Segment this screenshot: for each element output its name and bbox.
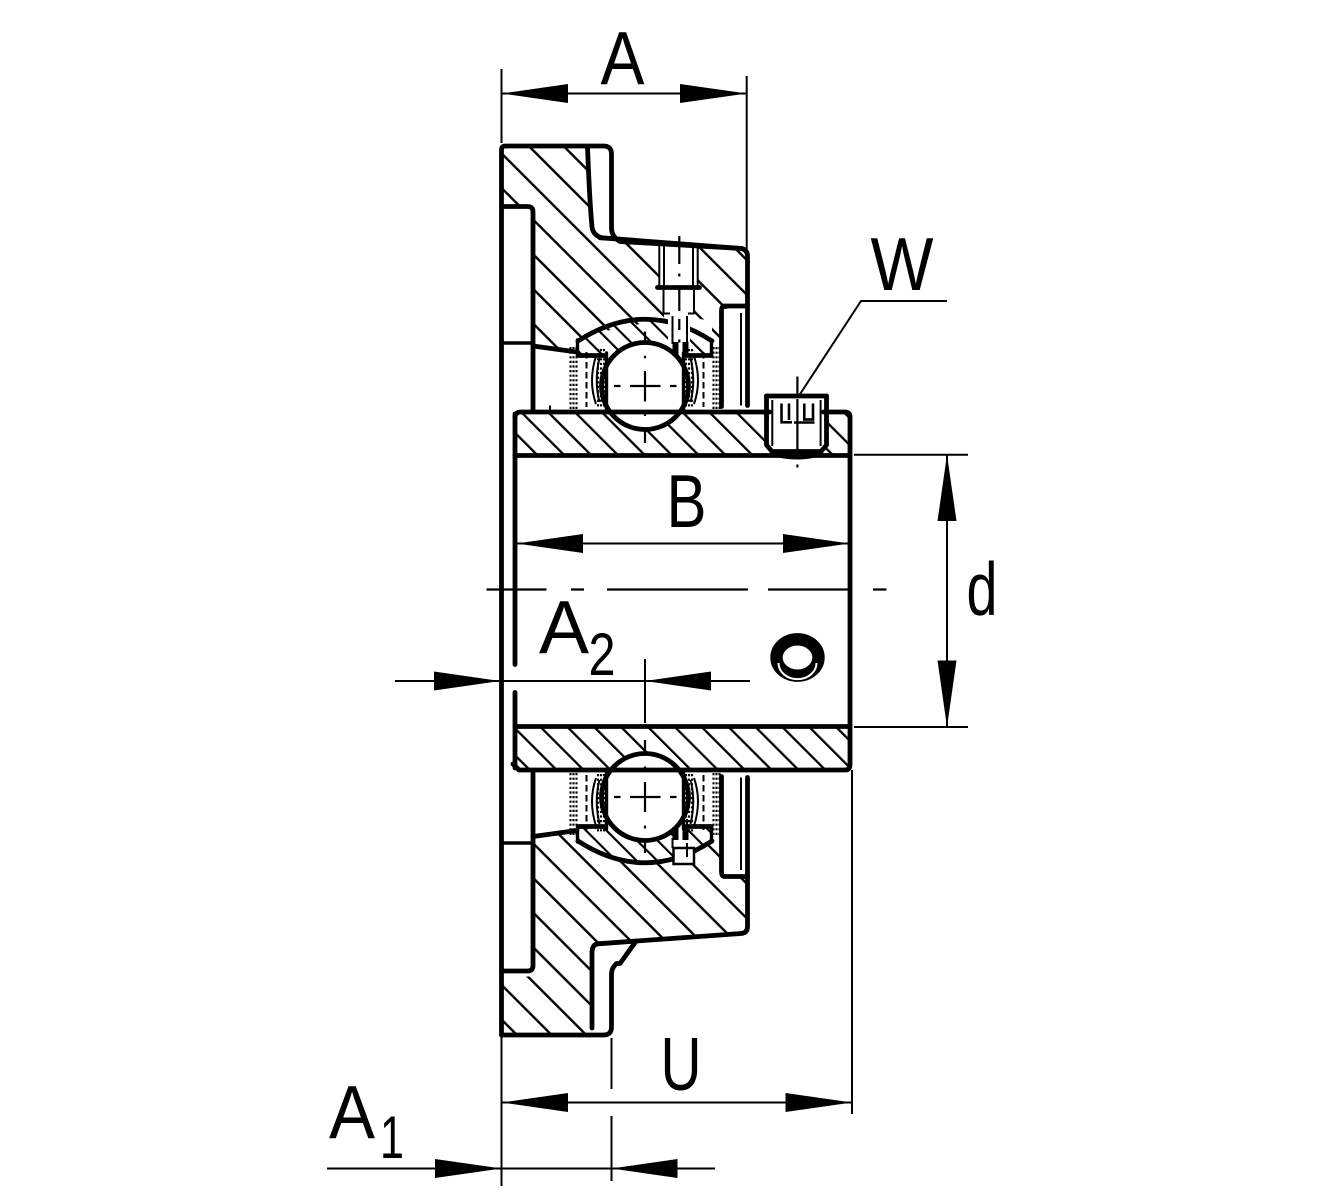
svg-text:d: d [967,547,998,631]
svg-text:A: A [601,16,645,100]
svg-text:2: 2 [589,621,616,688]
svg-text:W: W [871,222,934,306]
svg-text:A: A [329,1070,375,1154]
svg-text:U: U [661,1022,702,1106]
svg-text:1: 1 [380,1104,404,1171]
svg-text:A: A [539,585,589,669]
svg-text:B: B [667,459,707,543]
